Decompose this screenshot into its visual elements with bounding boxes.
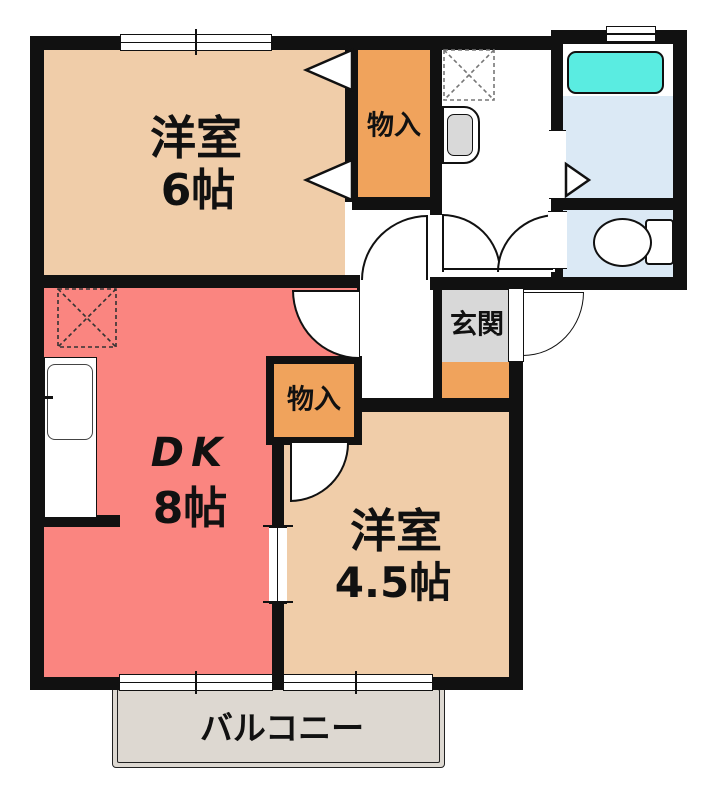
wall-washroom-left	[430, 36, 442, 215]
room6-name-label: 洋室	[150, 115, 242, 161]
sliding-door-tick-top	[263, 525, 293, 527]
floor-plan: 洋室 6帖 物入 DK 8帖 物入 玄関 洋室 4.5帖 バルコニー	[0, 0, 710, 800]
wall-right-upper	[673, 30, 687, 290]
window-room45-balcony	[283, 674, 433, 691]
genkan-label: 玄関	[450, 312, 504, 339]
closet-center-label: 物入	[287, 387, 341, 414]
dk-size-label: 8帖	[153, 487, 228, 531]
genkan-step	[442, 362, 509, 398]
wall-hall-genkan	[433, 288, 442, 402]
kitchen-sink-icon	[47, 364, 93, 440]
door-arc-room6-hall	[361, 215, 428, 280]
room45-size-label: 4.5帖	[335, 562, 451, 604]
wall-top-main	[30, 36, 553, 50]
wall-hall-bottom	[352, 398, 523, 412]
wall-wet-area-south	[430, 277, 687, 290]
closet-north-label: 物入	[367, 113, 421, 140]
entrance-door-leaf	[508, 288, 524, 362]
window-room6-tick	[195, 29, 197, 55]
room6-size-label: 6帖	[161, 169, 236, 213]
wall-room6-right	[345, 36, 358, 202]
wall-bath-toilet	[551, 198, 673, 210]
dk-name-label: DK	[151, 433, 230, 473]
room45-name-label: 洋室	[350, 508, 442, 554]
wall-left	[30, 36, 44, 690]
faucet-icon	[36, 396, 53, 399]
door-arc-washroom-left-leaf	[442, 214, 501, 272]
door-arc-entrance	[523, 292, 584, 356]
wall-room6-dk	[30, 275, 360, 288]
window-dk-tick	[195, 671, 197, 694]
sliding-door-dk-room45	[269, 526, 287, 604]
wall-bottom	[30, 677, 523, 690]
washbasin-bowl-icon	[447, 114, 473, 156]
wall-closet-north-bottom	[352, 197, 440, 210]
toilet-door-opening	[548, 211, 567, 269]
balcony-label: バルコニー	[200, 712, 364, 745]
bathroom-door-opening	[549, 130, 566, 199]
sliding-door-tick-bottom	[263, 601, 293, 603]
washer-space-washroom-icon	[444, 50, 494, 100]
bathroom-floor	[563, 96, 673, 198]
window-room45-tick	[355, 671, 357, 694]
window-bathroom	[606, 26, 656, 42]
washroom-door-threshold	[442, 268, 553, 270]
toilet-bowl-icon	[593, 218, 652, 267]
bathtub-icon	[567, 51, 664, 94]
